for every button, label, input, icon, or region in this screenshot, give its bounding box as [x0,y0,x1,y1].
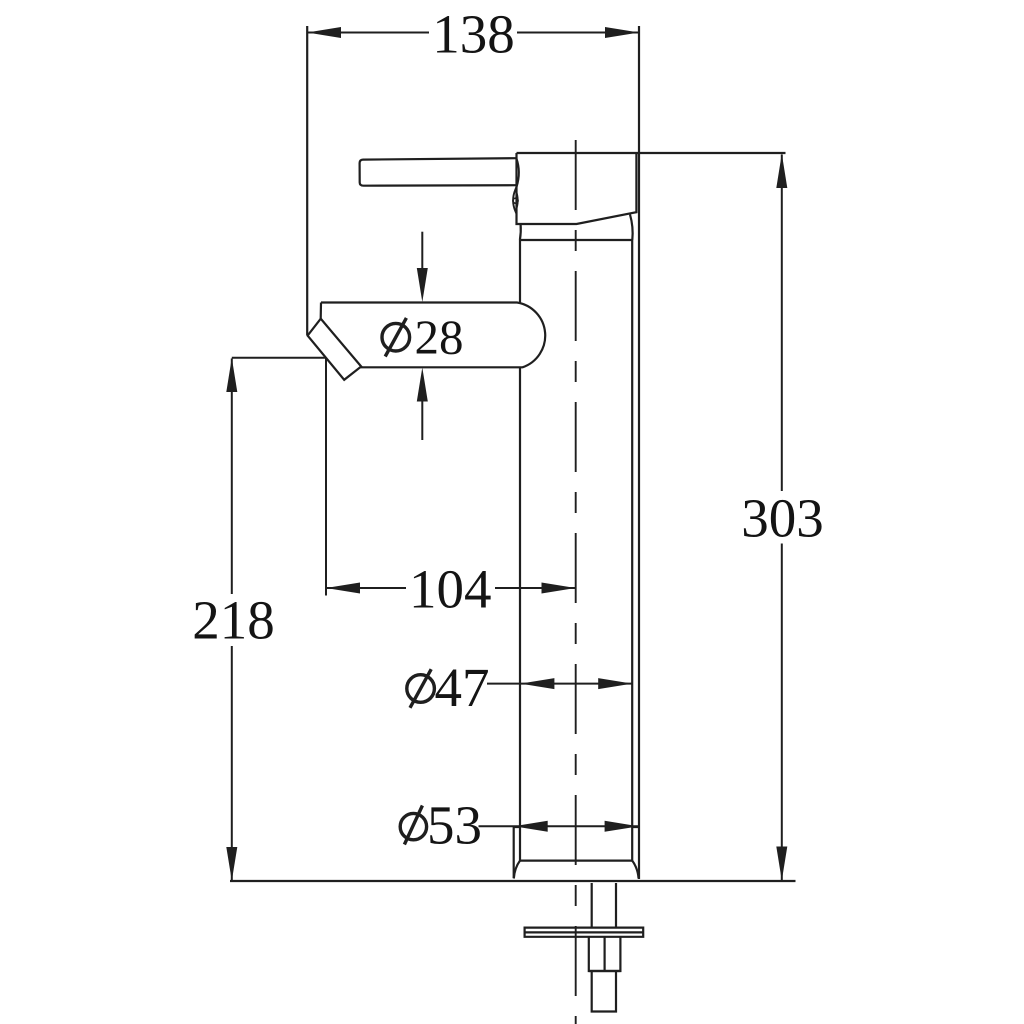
svg-text:53: 53 [427,794,482,855]
svg-text:47: 47 [435,657,490,718]
svg-text:218: 218 [192,590,275,651]
svg-text:138: 138 [432,4,515,65]
svg-text:28: 28 [415,310,464,365]
svg-text:104: 104 [409,559,492,620]
svg-text:303: 303 [741,488,824,549]
